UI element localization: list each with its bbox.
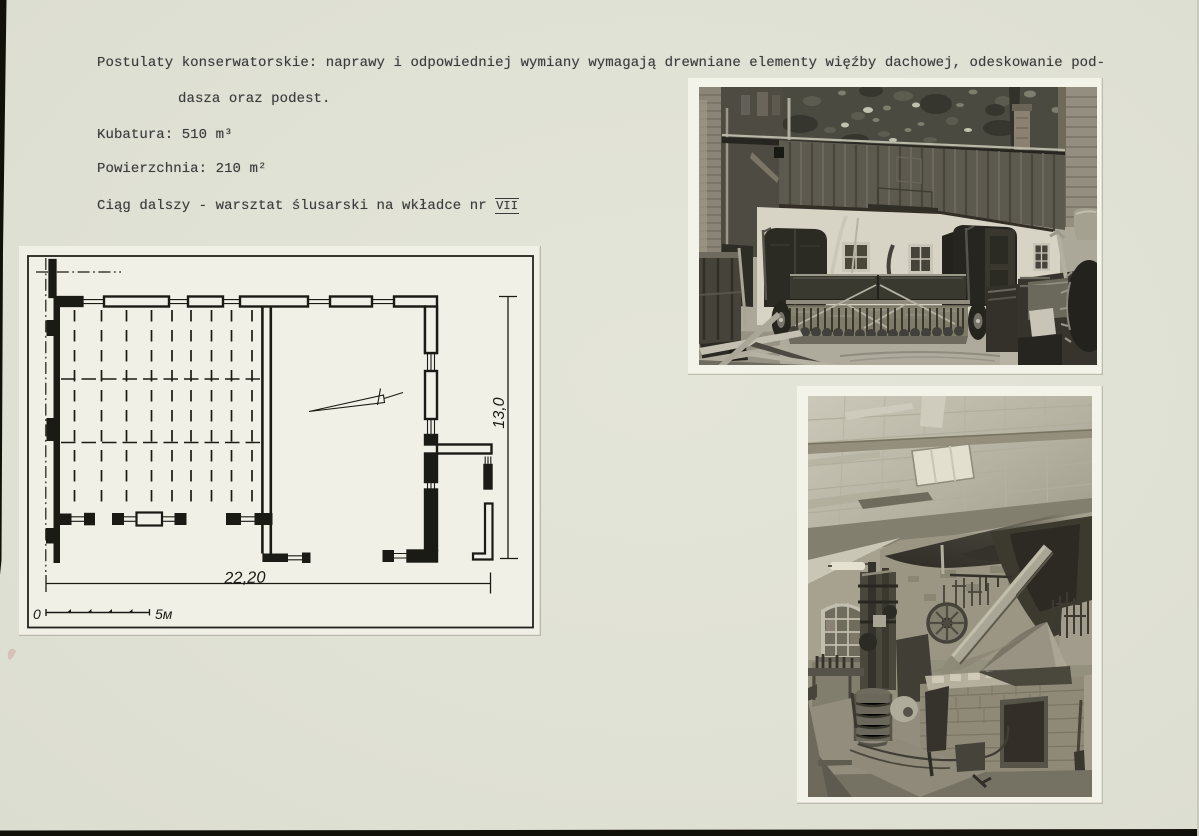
svg-text:13,0: 13,0 bbox=[491, 397, 508, 428]
svg-text:0: 0 bbox=[33, 606, 41, 622]
svg-text:22,20: 22,20 bbox=[223, 568, 267, 587]
svg-text:5м: 5м bbox=[155, 606, 173, 622]
